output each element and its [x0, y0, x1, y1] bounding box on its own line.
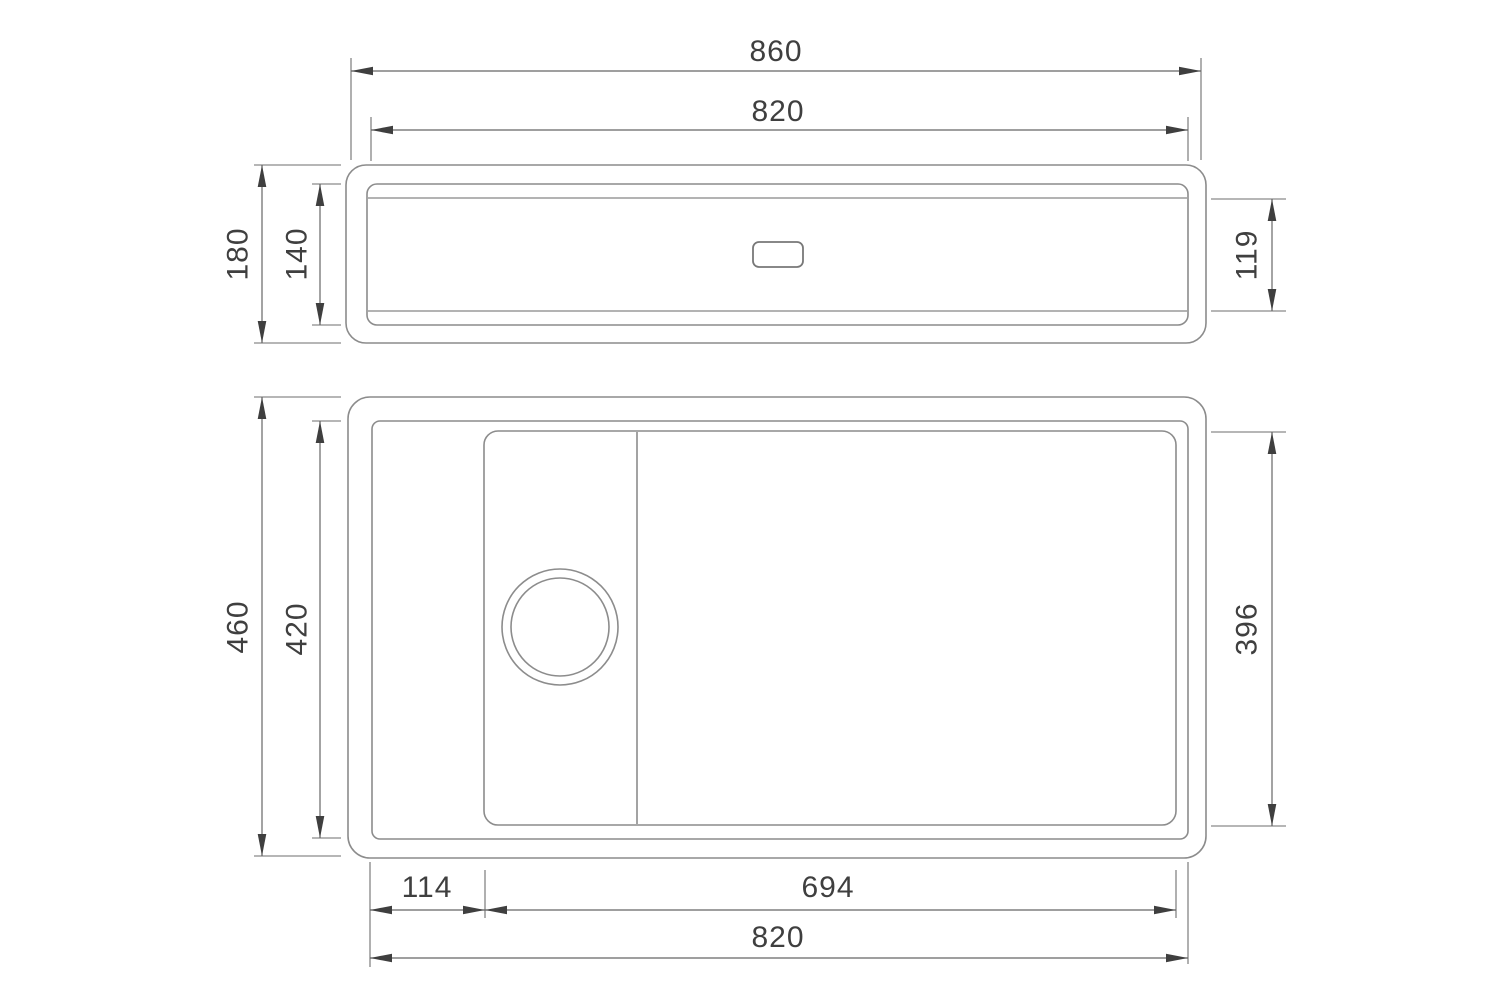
sink-dimension-drawing: 860 820 180 140 119	[0, 0, 1500, 1000]
dimension-820-inner-width-bottom: 820	[370, 862, 1188, 964]
sink-side-outer-outline	[346, 165, 1206, 343]
dimension-140-inner-height: 140	[281, 184, 342, 325]
dim-label-420: 420	[281, 602, 314, 655]
sink-bowl-outline	[484, 431, 1176, 825]
drain-outer-circle	[502, 569, 618, 685]
dim-label-114: 114	[402, 871, 453, 904]
side-elevation-view	[346, 165, 1206, 343]
dim-label-396: 396	[1231, 602, 1264, 655]
sink-plan-outer-outline	[348, 397, 1206, 858]
top-plan-view	[348, 397, 1206, 858]
dim-label-180: 180	[222, 227, 255, 280]
dimension-119-basin-height: 119	[1211, 199, 1286, 311]
dim-label-119: 119	[1231, 230, 1264, 281]
dim-label-694: 694	[801, 871, 854, 904]
sink-plan-rim-outline	[372, 421, 1188, 839]
dim-label-820-top: 820	[751, 95, 804, 128]
technical-drawing-page: 860 820 180 140 119	[0, 0, 1500, 1000]
dimension-694-bowl-width: 694	[485, 870, 1176, 918]
sink-side-inner-outline	[367, 184, 1188, 325]
dimension-420-inner-depth: 420	[281, 421, 342, 838]
dimension-396-bowl-depth: 396	[1211, 432, 1286, 826]
dimension-820-inner-width-top: 820	[371, 95, 1188, 161]
dim-label-820-bottom: 820	[751, 921, 804, 954]
drain-inner-circle	[511, 578, 609, 676]
dim-label-860: 860	[749, 35, 802, 68]
dim-label-460: 460	[222, 600, 255, 653]
dim-label-140: 140	[281, 227, 314, 280]
overflow-hole	[753, 242, 803, 267]
dimension-114-ledge-width: 114	[370, 862, 485, 967]
